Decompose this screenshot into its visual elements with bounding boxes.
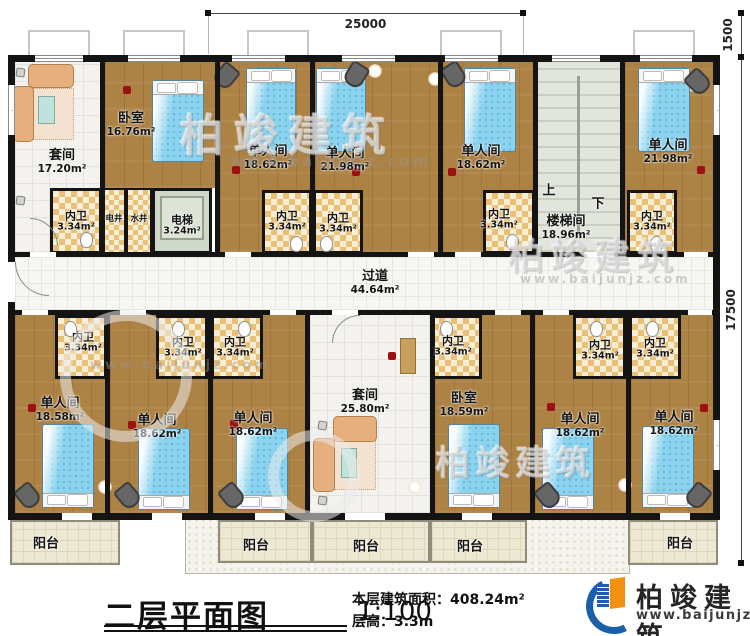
door-opening (455, 252, 481, 257)
bathroom-label: 内卫 3.34m² (636, 338, 674, 361)
dimension-right-upper-label: 1500 (721, 15, 735, 55)
wall-fixture (388, 352, 396, 360)
door-opening (8, 262, 15, 302)
wall (100, 62, 105, 252)
room-label-single: 单人间 21.98m² (644, 139, 693, 165)
toilet (590, 321, 603, 337)
toilet (650, 236, 663, 252)
toilet (506, 234, 519, 250)
window (8, 85, 15, 135)
window-bay (633, 30, 695, 57)
wall-fixture (123, 86, 131, 94)
ceiling-light (368, 64, 382, 78)
dimension-tick (738, 560, 744, 566)
room-label-single: 单人间 18.62m² (650, 411, 699, 437)
window (342, 55, 395, 62)
window (128, 55, 180, 62)
title-underline (104, 625, 347, 627)
dimension-tick (520, 10, 526, 16)
corridor-label: 过道 44.64m² (351, 270, 400, 296)
door-opening (688, 310, 712, 315)
dimension-tick (205, 10, 211, 16)
room-label-stairwell: 楼梯间 18.96m² (542, 215, 591, 241)
door-opening (332, 310, 358, 315)
speaker-box (15, 67, 25, 77)
bed (448, 424, 500, 508)
toilet (80, 232, 93, 248)
toilet (320, 236, 333, 252)
room-label-single: 单人间 18.62m² (457, 145, 506, 171)
floor-plan-canvas: 25000 1500 17500 (0, 0, 750, 636)
wall (620, 62, 625, 252)
floor-height-line: 层高：3.3m (352, 611, 433, 631)
dimension-line-top (208, 13, 523, 14)
dimension-tick (738, 54, 744, 60)
toilet (290, 236, 303, 252)
bed (152, 80, 204, 162)
door-opening (495, 310, 521, 315)
bed (464, 68, 516, 152)
room-label-single: 单人间 18.62m² (229, 412, 278, 438)
balcony-label: 阳台 (457, 541, 483, 556)
floor-height-label: 层高： (352, 614, 394, 630)
bathroom-label: 内卫 3.34m² (319, 213, 357, 236)
dimension-right-main-label: 17500 (724, 280, 738, 340)
dimension-extension (523, 14, 524, 54)
bed (246, 68, 296, 152)
elevator-label: 电梯 3.24m² (163, 215, 201, 238)
room-label-suite: 套间 25.80m² (341, 389, 390, 415)
wall (533, 62, 538, 252)
floor-area-line: 本层建筑面积：408.24m² (352, 589, 525, 609)
door-opening (462, 513, 492, 520)
window-bay (123, 30, 185, 57)
bed (42, 424, 94, 508)
sofa (13, 86, 34, 142)
bathroom-label: 内卫 3.34m² (581, 340, 619, 363)
window-bay (247, 30, 309, 57)
window (713, 85, 720, 135)
title-underline (104, 630, 347, 632)
wall (305, 315, 310, 513)
bathroom-label: 内卫 3.34m² (633, 211, 671, 234)
logo-brand-name: 柏竣建筑 (636, 576, 750, 636)
speaker-box (317, 495, 327, 505)
wall-fixture (448, 168, 456, 176)
wall-fixture (547, 403, 555, 411)
wall (530, 315, 535, 513)
bathroom-label: 内卫 3.34m² (268, 211, 306, 234)
speaker-box (15, 195, 25, 205)
window (232, 55, 285, 62)
balcony (10, 520, 120, 565)
wall (105, 315, 110, 513)
stair-down-label: 下 (591, 198, 604, 213)
door-opening (22, 310, 48, 315)
wall (8, 310, 720, 315)
room-label-single: 单人间 18.58m² (36, 397, 85, 423)
window (35, 55, 83, 62)
logo-building-blue-icon (597, 584, 609, 607)
coffee-table (38, 96, 55, 124)
bathroom-label: 内卫 3.34m² (480, 209, 518, 232)
wall-fixture (232, 166, 240, 174)
door-opening (225, 252, 251, 257)
shaft-label: 水井 (130, 215, 147, 225)
sofa (28, 64, 74, 88)
floor-area-value: 408.24m² (450, 592, 525, 608)
window (640, 55, 692, 62)
window-bay (440, 30, 502, 57)
door-opening (660, 513, 690, 520)
bathroom-label: 内卫 3.34m² (216, 337, 254, 360)
bathroom-label: 内卫 3.34m² (434, 336, 472, 359)
bed (138, 428, 190, 510)
room-label-single: 单人间 21.98m² (321, 147, 370, 173)
dimension-width-label: 25000 (208, 17, 523, 31)
floor-area-label: 本层建筑面积： (352, 592, 450, 608)
door-opening (62, 513, 92, 520)
room-label-bedroom: 卧室 18.59m² (440, 392, 489, 418)
sofa (313, 438, 335, 492)
room-label-suite: 套间 17.20m² (38, 149, 87, 175)
door-opening (120, 310, 146, 315)
door-opening (684, 252, 708, 257)
balcony-label: 阳台 (33, 538, 59, 553)
room-label-single: 单人间 18.62m² (244, 145, 293, 171)
window-bay (28, 30, 90, 57)
logo-website: www.baijunjz.com (636, 608, 750, 623)
door-opening (584, 252, 614, 257)
desk (400, 338, 416, 374)
balcony-label: 阳台 (353, 541, 379, 556)
door-opening (270, 310, 296, 315)
wall (438, 62, 443, 252)
speaker-box (317, 420, 327, 430)
wall (626, 315, 631, 513)
door-opening (152, 513, 182, 520)
sofa (333, 416, 377, 442)
balcony-label: 阳台 (243, 540, 269, 555)
logo-building-orange-icon (610, 577, 625, 609)
wall (208, 315, 213, 513)
bathroom-label: 内卫 3.34m² (64, 332, 102, 355)
dimension-tick (738, 10, 744, 16)
door-opening (345, 513, 385, 520)
coffee-table (341, 448, 357, 478)
stair-rail (577, 76, 580, 236)
door-opening (408, 252, 434, 257)
window (445, 55, 498, 62)
wall (215, 62, 220, 252)
toilet (646, 321, 659, 337)
wall (310, 62, 315, 252)
room-label-bedroom: 卧室 16.76m² (107, 112, 156, 138)
floor-height-value: 3.3m (394, 614, 433, 630)
ceiling-light (408, 480, 422, 494)
door-opening (543, 310, 569, 315)
wall-fixture (700, 404, 708, 412)
room-label-single: 单人间 18.62m² (556, 413, 605, 439)
window (552, 55, 600, 62)
dimension-line-right (741, 13, 742, 565)
room-label-single: 单人间 18.62m² (133, 414, 182, 440)
door-opening (30, 252, 56, 257)
wall-fixture (697, 166, 705, 174)
stair-up-label: 上 (542, 185, 555, 200)
balcony-label: 阳台 (667, 538, 693, 553)
bathroom-label: 内卫 3.34m² (57, 211, 95, 234)
window (713, 420, 720, 470)
bathroom-label: 内卫 3.34m² (164, 337, 202, 360)
door-opening (255, 513, 285, 520)
shaft-label: 电井 (105, 215, 122, 225)
